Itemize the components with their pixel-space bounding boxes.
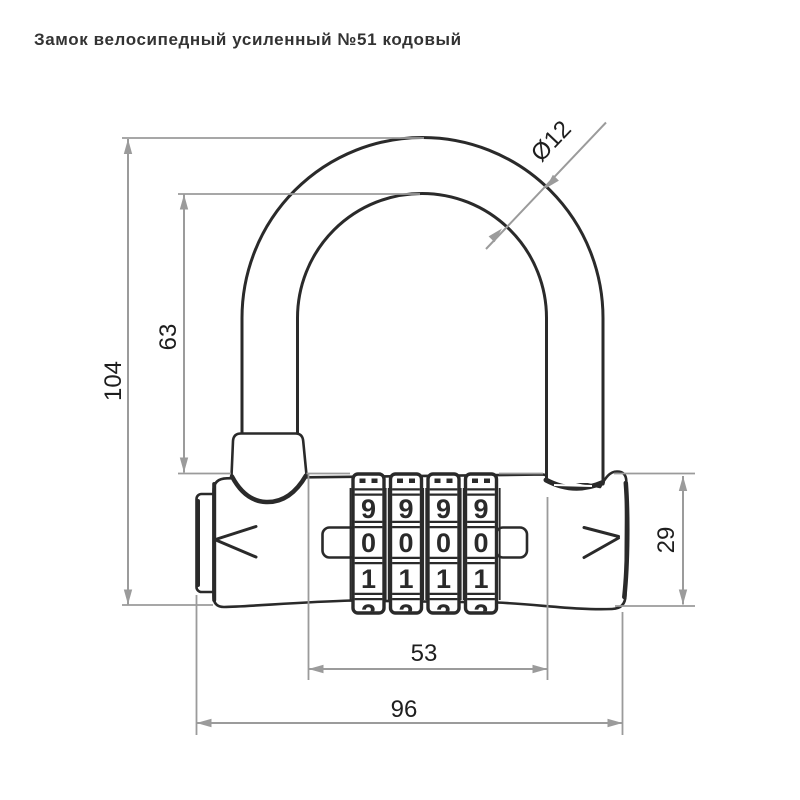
dial-digit: 9 <box>398 494 413 524</box>
lock-technical-drawing: 104 63 29 53 96 Ø12 9012901290129012 <box>0 0 800 800</box>
dim-label-total-width: 96 <box>391 696 418 723</box>
dim-label-dials-width: 53 <box>411 640 438 667</box>
dial-digit: 0 <box>361 528 376 558</box>
dial-digit: 9 <box>473 494 488 524</box>
dial-digit: 1 <box>436 564 451 594</box>
dial-digit: 1 <box>473 564 488 594</box>
dial-partial-top-mark <box>360 479 366 484</box>
dial-partial-top-mark <box>484 479 490 484</box>
dim-label-total-height: 104 <box>100 361 127 401</box>
dial-digit: 1 <box>398 564 413 594</box>
dial-digit: 0 <box>436 528 451 558</box>
dim-label-inner-height: 63 <box>155 324 182 351</box>
dial-digit: 9 <box>436 494 451 524</box>
shackle <box>242 137 603 484</box>
dial-partial-top-mark <box>447 479 453 484</box>
dial-digit: 0 <box>473 528 488 558</box>
dim-label-shackle-diameter: Ø12 <box>526 116 577 167</box>
dial-wheel-3: 9012 <box>428 474 459 629</box>
dial-partial-top-mark <box>435 479 441 484</box>
dial-digit: 0 <box>398 528 413 558</box>
dial-wheel-2: 9012 <box>391 474 422 629</box>
dial-partial-top-mark <box>397 479 403 484</box>
dial-housing-right-tab <box>496 528 527 558</box>
dimensions: 104 63 29 53 96 Ø12 <box>100 116 695 735</box>
technical-drawing-page: Замок велосипедный усиленный №51 кодовый <box>0 0 800 800</box>
dial-partial-top-mark <box>372 479 378 484</box>
dim-label-body-height: 29 <box>653 527 680 554</box>
dial-wheel-4: 9012 <box>466 474 497 629</box>
dial-partial-top-mark <box>409 479 415 484</box>
dial-partial-top-mark <box>472 479 478 484</box>
shackle-boot <box>232 434 307 503</box>
dial-digit: 1 <box>361 564 376 594</box>
dial-digit: 9 <box>361 494 376 524</box>
dial-wheel-1: 9012 <box>353 474 384 629</box>
